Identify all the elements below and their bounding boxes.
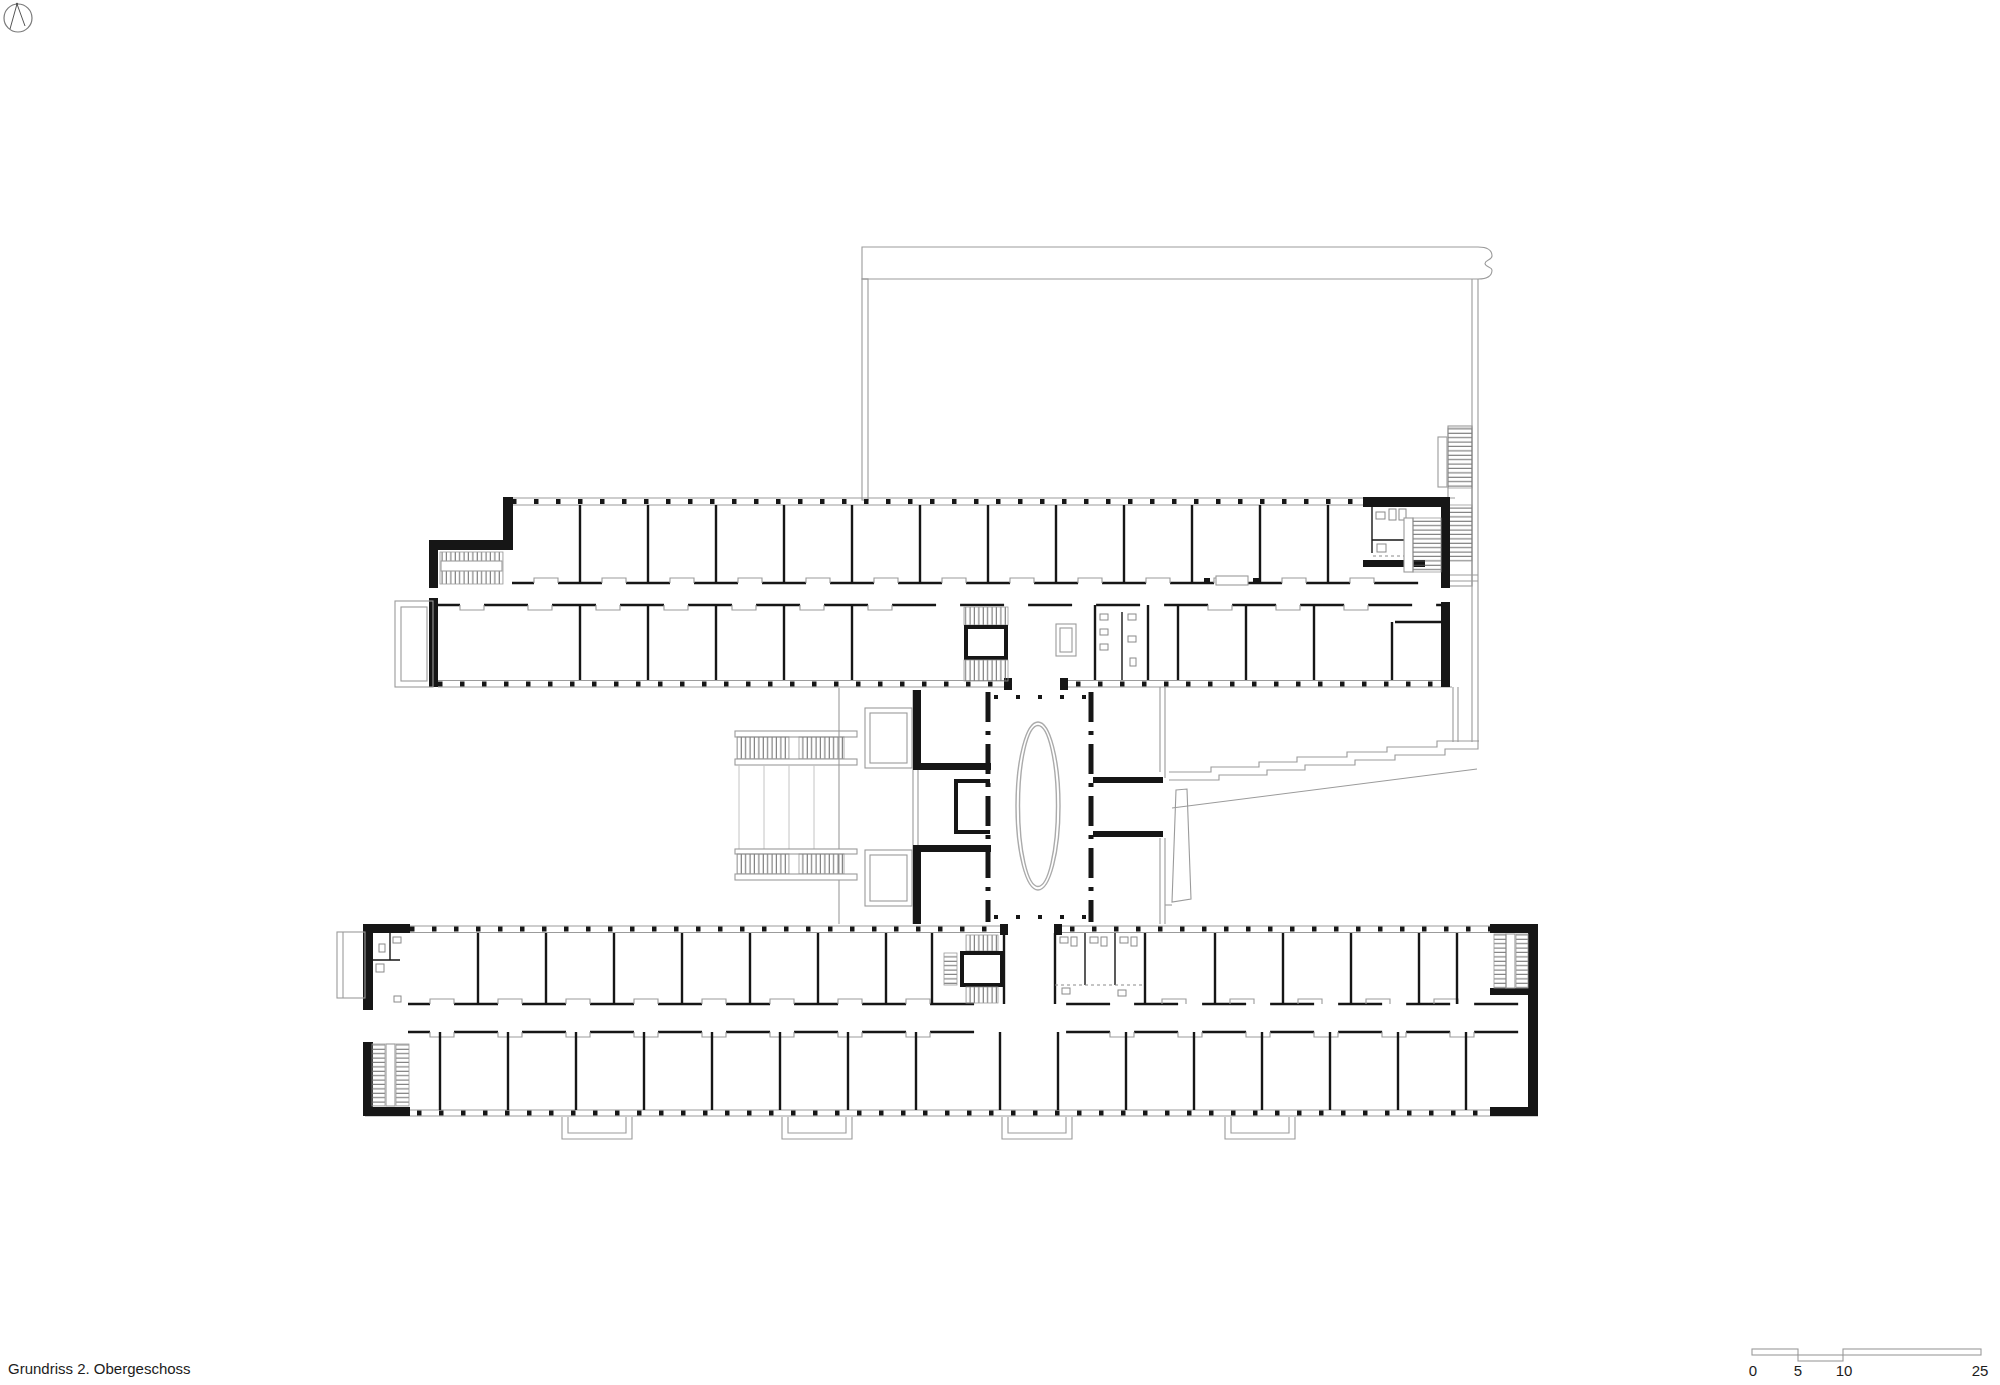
scale-label-10: 10 (1836, 1363, 1853, 1379)
small-room (956, 781, 990, 832)
scale-bar (1752, 1349, 1981, 1361)
stair-core-sw (372, 1044, 409, 1106)
plan-title: Grundriss 2. Obergeschoss (8, 1361, 191, 1377)
floor-plan-svg (0, 0, 2000, 1385)
shaft (1056, 624, 1076, 656)
wc-block-west (373, 933, 401, 1002)
balcony-west-lower (337, 932, 365, 998)
elevator (966, 627, 1006, 658)
north-arrow-icon (4, 3, 32, 32)
stair-core-lower (932, 933, 1004, 1004)
stair-core-ne (1404, 518, 1441, 572)
scale-label-25: 25 (1972, 1363, 1989, 1379)
wc-block-upper (1095, 605, 1148, 680)
elevator (962, 953, 1002, 985)
wc-block-ne (1372, 507, 1406, 556)
central-connector (913, 687, 1165, 924)
upper-wing (429, 497, 1455, 690)
elevator-oval (1016, 722, 1060, 890)
terrace-steps (1165, 575, 1478, 905)
void-stairs (735, 688, 912, 924)
scale-label-5: 5 (1794, 1363, 1802, 1379)
scale-label-0: 0 (1749, 1363, 1757, 1379)
wc-block-lower (1055, 933, 1145, 1004)
lower-wing (363, 922, 1538, 1116)
stair-core-nw (440, 552, 503, 584)
drawing-sheet: Grundriss 2. Obergeschoss 0 5 10 25 (0, 0, 2000, 1385)
room-partitions (580, 505, 1328, 583)
stair-core-upper (964, 607, 1008, 681)
wall-segment (503, 497, 513, 543)
stair-core-se (1494, 934, 1528, 988)
